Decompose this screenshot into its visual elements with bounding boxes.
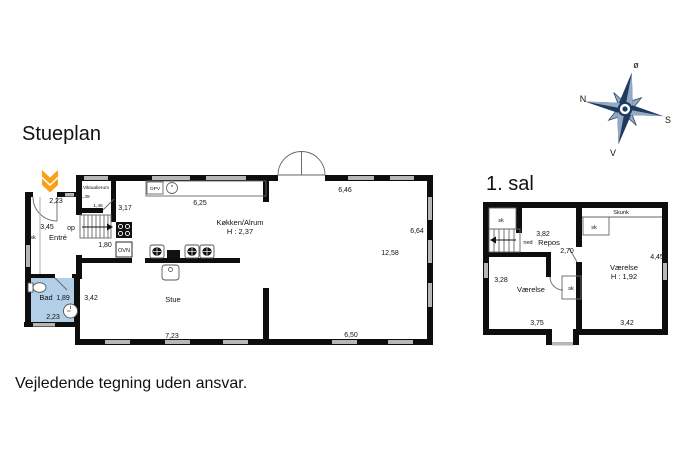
dim-pantry-width: 1,39 <box>80 194 90 200</box>
dim-bottom-right: 6,50 <box>344 332 358 339</box>
room-repos: Repos <box>538 238 560 247</box>
compass-star <box>578 65 670 151</box>
label-water-heater: OPV <box>150 186 161 192</box>
ground-floor-plan: 2,23 Viktualierum 1,39 1,46 3,17 3,45 op… <box>24 152 433 346</box>
dormer-wall <box>546 329 552 345</box>
compass-south-label: S <box>665 115 671 125</box>
dim-first-bottom-left: 3,75 <box>530 320 544 327</box>
dormer-window <box>552 342 573 346</box>
kitchen-island-counter <box>145 258 240 263</box>
dim-stairs-width: 3,82 <box>536 231 550 238</box>
compass-rose: ø N S V <box>578 60 671 158</box>
room-kitchen-height: H : 2,37 <box>227 227 253 236</box>
label-closet-mid: sk <box>568 286 574 292</box>
label-stairs-up: op <box>67 225 75 232</box>
ground-floor-walls <box>24 175 433 345</box>
dim-first-bottom-right: 3,42 <box>620 320 634 327</box>
dim-great-room: 12,58 <box>381 250 399 257</box>
page-title: Stueplan <box>22 123 101 145</box>
dim-bad-width: 1,89 <box>56 295 70 302</box>
label-closet-stairs: sk <box>498 218 504 224</box>
room-stue: Stue <box>165 295 180 304</box>
dim-kitchen-side: 1,80 <box>98 242 112 249</box>
island-block <box>167 250 180 258</box>
room-pantry: Viktualierum <box>83 185 109 191</box>
first-floor-plan: Skunk sk sk 3,82 ned Repos 2,70 4,45 Vær… <box>483 202 668 346</box>
room-left: Værelse <box>517 285 545 294</box>
toilet-icon <box>33 283 46 293</box>
label-closet-right: sk <box>591 225 597 231</box>
dim-bottom-left: 7,23 <box>165 333 179 340</box>
label-oven: OVN <box>118 248 130 254</box>
room-skunk: Skunk <box>613 210 629 216</box>
dim-first-left: 3,28 <box>494 277 508 284</box>
room-door-swing <box>550 277 563 290</box>
toilet-tank <box>28 283 33 292</box>
room-entre: Entré <box>49 233 67 242</box>
water-heater-icon <box>167 183 178 194</box>
dim-pantry-depth: 1,46 <box>93 203 103 209</box>
patio-double-door-right <box>302 152 326 176</box>
dim-kitchen-top: 6,25 <box>193 200 207 207</box>
stove-icon <box>116 222 132 238</box>
dormer-wall <box>573 329 579 345</box>
first-floor-title: 1. sal <box>486 173 534 195</box>
dim-stue-side: 3,42 <box>84 295 98 302</box>
dim-right-side: 6,64 <box>410 228 424 235</box>
label-closet-bad: sk <box>26 317 31 323</box>
dim-pantry-side: 3,17 <box>118 205 132 212</box>
dim-landing-width: 2,70 <box>560 248 574 255</box>
room-kitchen: Køkken/Alrum <box>216 218 263 227</box>
stairs-up <box>80 215 113 238</box>
room-right-height: H : 1,92 <box>611 272 637 281</box>
room-right: Værelse <box>610 263 638 272</box>
compass-north-label: N <box>580 94 587 104</box>
floorplan-page: Stueplan 1. sal Vejledende tegning uden … <box>0 0 687 457</box>
compass-west-label: V <box>610 148 616 158</box>
kitchen-counter <box>146 180 266 196</box>
first-floor-walls <box>483 202 668 345</box>
dim-first-right: 4,45 <box>650 254 664 261</box>
label-stairs-down: ned <box>523 240 532 246</box>
floorplan-canvas: Stueplan 1. sal Vejledende tegning uden … <box>0 0 687 457</box>
patio-double-door-left <box>278 152 302 176</box>
room-bad: Bad <box>39 293 52 302</box>
dim-entry-width: 2,23 <box>49 198 63 205</box>
stairs-down <box>489 229 520 252</box>
disclaimer-text: Vejledende tegning uden ansvar. <box>15 375 247 392</box>
entrance-marker-icon <box>42 170 58 193</box>
label-closet-entre: sk <box>30 235 36 241</box>
dim-top-right: 6,46 <box>338 187 352 194</box>
dim-entre-depth: 3,45 <box>40 224 54 231</box>
dim-bad-bottom: 2,23 <box>46 314 60 321</box>
compass-east-label: ø <box>633 60 639 70</box>
